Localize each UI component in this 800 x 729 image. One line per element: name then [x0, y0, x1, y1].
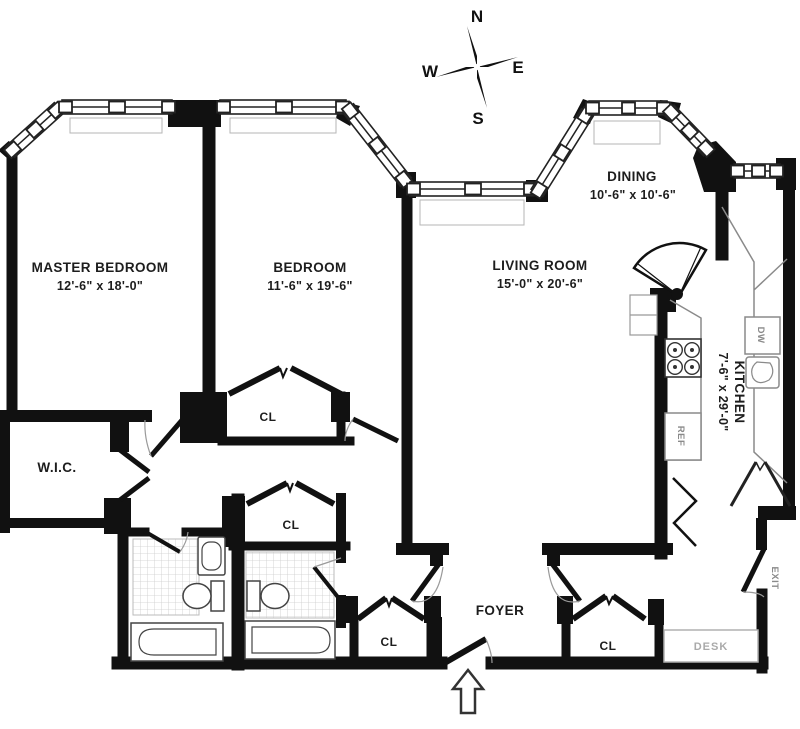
window-bedroom	[217, 100, 349, 114]
bathroom-2	[245, 552, 335, 659]
dishwasher-label: DW	[755, 327, 766, 344]
window-living-room	[407, 182, 537, 196]
compass-north: N	[471, 7, 483, 26]
window-dining-top	[586, 101, 670, 115]
entry-arrow	[453, 670, 483, 713]
dining-label: DINING	[607, 169, 657, 184]
bathroom-1	[131, 537, 225, 661]
closet-label-foyer-right: CL	[600, 639, 617, 653]
closet-label-foyer-left: CL	[381, 635, 398, 649]
kitchen-label: KITCHEN	[732, 361, 747, 424]
kitchen-sink	[746, 357, 779, 388]
floor-plan-page: MASTER BEDROOM 12'-6" x 18'-0" BEDROOM 1…	[0, 0, 800, 729]
window-bay-left-slope	[341, 101, 414, 188]
compass-rose: N S W E	[422, 7, 524, 128]
window-bay-right-slope	[529, 106, 594, 199]
refrigerator-label: REF	[675, 426, 686, 447]
kitchen-dims: 7'-6" x 29'-0"	[716, 353, 730, 432]
dining-dims: 10'-6" x 10'-6"	[590, 188, 676, 202]
kitchen-label-group: KITCHEN 7'-6" x 29'-0"	[716, 353, 747, 432]
compass-west: W	[422, 62, 439, 81]
bedroom-label: BEDROOM	[273, 260, 346, 275]
living-room-label: LIVING ROOM	[492, 258, 587, 273]
bath2-toilet-tank	[247, 581, 260, 611]
kitchen-bifold-door	[673, 478, 696, 546]
window-kitchen-north	[731, 164, 783, 178]
exit-label: EXIT	[769, 566, 780, 589]
compass-east: E	[512, 58, 523, 77]
foyer-label: FOYER	[476, 603, 525, 618]
desk-label: DESK	[694, 641, 729, 653]
closet-label-bedroom: CL	[260, 410, 277, 424]
bath1-toilet-tank	[211, 581, 224, 611]
master-bedroom-label: MASTER BEDROOM	[32, 260, 169, 275]
bath1-toilet-bowl	[183, 584, 211, 609]
compass-south: S	[472, 109, 483, 128]
bath2-toilet-bowl	[261, 584, 289, 609]
living-room-dims: 15'-0" x 20'-6"	[497, 277, 583, 291]
window-master-bedroom	[59, 100, 175, 114]
window-dining-right-slope	[662, 103, 716, 158]
master-bedroom-dims: 12'-6" x 18'-0"	[57, 279, 143, 293]
wic-label: W.I.C.	[37, 460, 76, 475]
compass-star	[436, 26, 518, 108]
floor-plan-drawing: MASTER BEDROOM 12'-6" x 18'-0" BEDROOM 1…	[0, 0, 800, 729]
bedroom-dims: 11'-6" x 19'-6"	[267, 279, 353, 293]
closet-label-hall: CL	[283, 518, 300, 532]
walls	[0, 124, 789, 668]
window-topleft-angled	[3, 101, 66, 160]
